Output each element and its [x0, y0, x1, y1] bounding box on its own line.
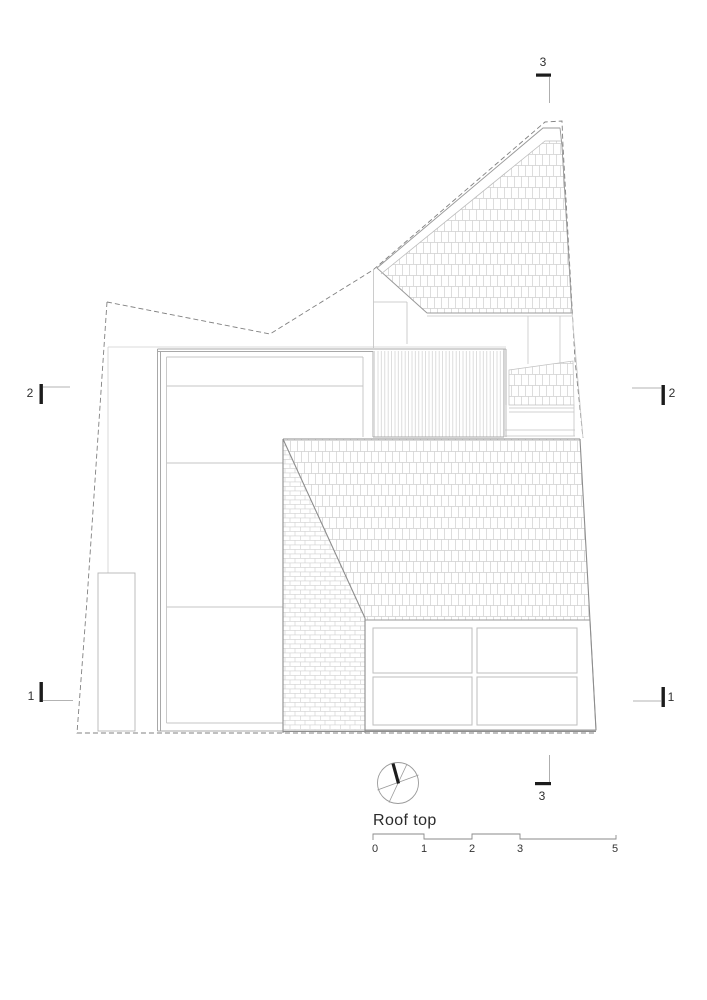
striped-seam-roof — [373, 349, 506, 437]
left-shaft-rect — [98, 573, 135, 731]
section-marker-3-bottom-label: 3 — [539, 789, 546, 803]
section-cut-bar — [535, 782, 551, 785]
section-marker-2-left-label: 2 — [27, 386, 34, 400]
main-hip-roof — [283, 439, 596, 733]
section-cut-bar — [40, 384, 43, 404]
section-marker-3-bottom: 3 — [535, 755, 551, 803]
upper-tiled-roof — [377, 128, 572, 316]
scale-label-5: 5 — [612, 843, 618, 855]
roof-plan-drawing: 3 3 2 2 1 1 Roof top — [0, 0, 707, 1000]
small-tiled-trapezoid-roof — [505, 361, 575, 436]
skylight-panel — [373, 628, 472, 673]
section-marker-3-top: 3 — [536, 55, 551, 103]
section-cut-bar — [662, 687, 665, 707]
section-marker-2-right-label: 2 — [669, 386, 676, 400]
section-marker-2-right: 2 — [632, 385, 676, 405]
skylight-panel — [477, 628, 577, 673]
section-marker-1-right: 1 — [633, 687, 675, 707]
section-marker-2-left: 2 — [27, 384, 70, 404]
roof-plan-page: 3 3 2 2 1 1 Roof top — [0, 0, 707, 1000]
scale-label-3: 3 — [517, 843, 523, 855]
scale-bar: 0 1 2 3 5 — [372, 834, 618, 855]
scale-label-2: 2 — [469, 843, 475, 855]
section-marker-1-right-label: 1 — [668, 690, 675, 704]
section-marker-3-top-label: 3 — [540, 55, 547, 69]
compass-north-arrow-icon — [378, 763, 419, 804]
section-marker-1-left: 1 — [28, 682, 73, 703]
scale-label-1: 1 — [421, 843, 427, 855]
section-cut-bar — [662, 385, 665, 405]
skylight-panel — [477, 677, 577, 725]
scale-label-0: 0 — [372, 843, 378, 855]
section-cut-bar — [40, 682, 43, 702]
skylight-panel — [373, 677, 472, 725]
section-cut-bar — [536, 74, 551, 77]
drawing-title: Roof top — [373, 812, 437, 829]
section-marker-1-left-label: 1 — [28, 689, 35, 703]
